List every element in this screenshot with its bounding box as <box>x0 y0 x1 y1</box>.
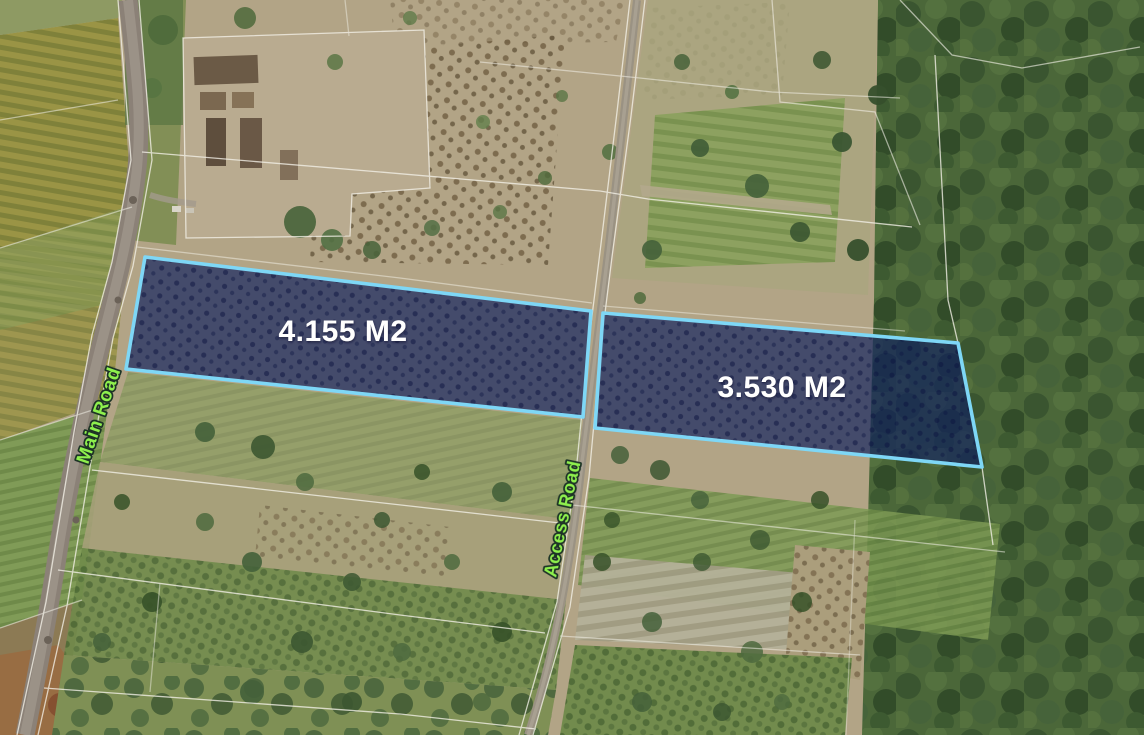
satellite-map: 4.155 M2 3.530 M2 Main Road Access Road <box>0 0 1144 735</box>
parcel-2-area-label: 3.530 M2 <box>717 371 846 404</box>
fields-below-parcels <box>52 372 582 735</box>
parcel-1-area-label: 4.155 M2 <box>278 315 407 348</box>
map-canvas: 4.155 M2 3.530 M2 Main Road Access Road <box>0 0 1144 735</box>
building-roof <box>194 55 259 85</box>
